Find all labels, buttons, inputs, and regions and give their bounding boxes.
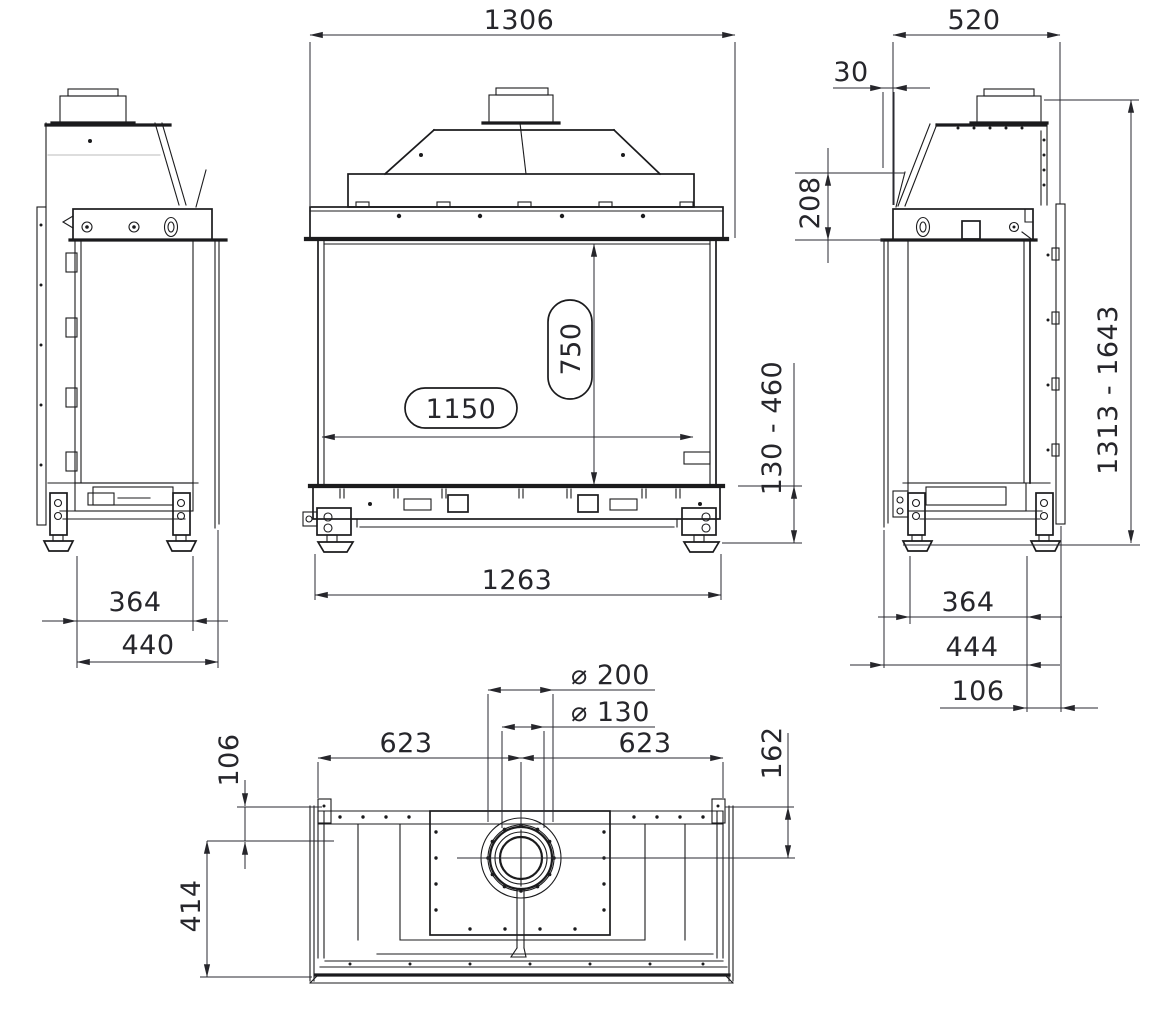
flue-collar-lip	[68, 89, 118, 96]
dim-top-flue-center-right: 623	[618, 728, 671, 759]
firebox-body	[75, 240, 193, 483]
brand-badge	[684, 452, 710, 464]
dim-front-glass-height: 750	[556, 322, 587, 375]
dim-front-height-adjust: 130 - 460	[757, 361, 788, 495]
leveling-foot	[684, 542, 719, 552]
dim-right-back-offset: 106	[951, 676, 1004, 707]
dim-right-base-depth: 364	[941, 587, 994, 618]
dim-front-base-width: 1263	[482, 565, 553, 596]
left-side-view: 364 440	[37, 89, 228, 668]
top-frame-band	[310, 207, 723, 239]
front-view: 1306 750 1150	[303, 5, 802, 600]
dim-top-flue-outer-diameter: ⌀ 200	[571, 660, 650, 691]
dim-right-overall-depth: 520	[947, 5, 1000, 36]
dim-top-flue-center-left: 623	[379, 728, 432, 759]
dim-top-interior-depth: 414	[176, 879, 207, 932]
dim-left-base-depth: 364	[108, 587, 161, 618]
flue-collar-lip	[984, 89, 1034, 96]
leveling-foot	[44, 541, 73, 551]
top-view: ⌀ 200 ⌀ 130 623 623 162 106 414	[176, 660, 795, 983]
right-side-view: 520 30	[795, 5, 1140, 712]
leveling-foot	[167, 541, 196, 551]
flue-collar	[977, 96, 1041, 123]
leveling-foot	[318, 542, 353, 552]
mounting-band	[73, 209, 212, 240]
dim-top-back-to-flue-center: 162	[757, 726, 788, 779]
mounting-band	[893, 209, 1033, 240]
flue-collar-lip	[496, 88, 548, 95]
dim-right-front-glass-offset: 30	[833, 57, 868, 88]
flue-collar	[489, 95, 553, 123]
leveling-foot	[903, 541, 932, 551]
dim-top-front-edge-offset: 106	[214, 733, 245, 786]
flue-collar	[60, 96, 126, 123]
firebox-plan	[430, 811, 610, 935]
leveling-foot	[1031, 541, 1060, 551]
dim-right-body-depth: 444	[945, 632, 998, 663]
dim-right-hood-height: 208	[795, 176, 826, 229]
dim-front-overall-width: 1306	[484, 5, 555, 36]
dim-front-glass-width: 1150	[426, 394, 497, 425]
technical-drawing-canvas: 364 440 1306	[0, 0, 1176, 1011]
dim-left-overall-depth: 440	[121, 630, 174, 661]
dim-top-flue-inner-diameter: ⌀ 130	[571, 697, 650, 728]
base-frame	[313, 487, 720, 519]
dim-right-overall-height: 1313 - 1643	[1093, 305, 1124, 475]
fireplace-dimension-drawing: 364 440 1306	[0, 0, 1176, 1011]
